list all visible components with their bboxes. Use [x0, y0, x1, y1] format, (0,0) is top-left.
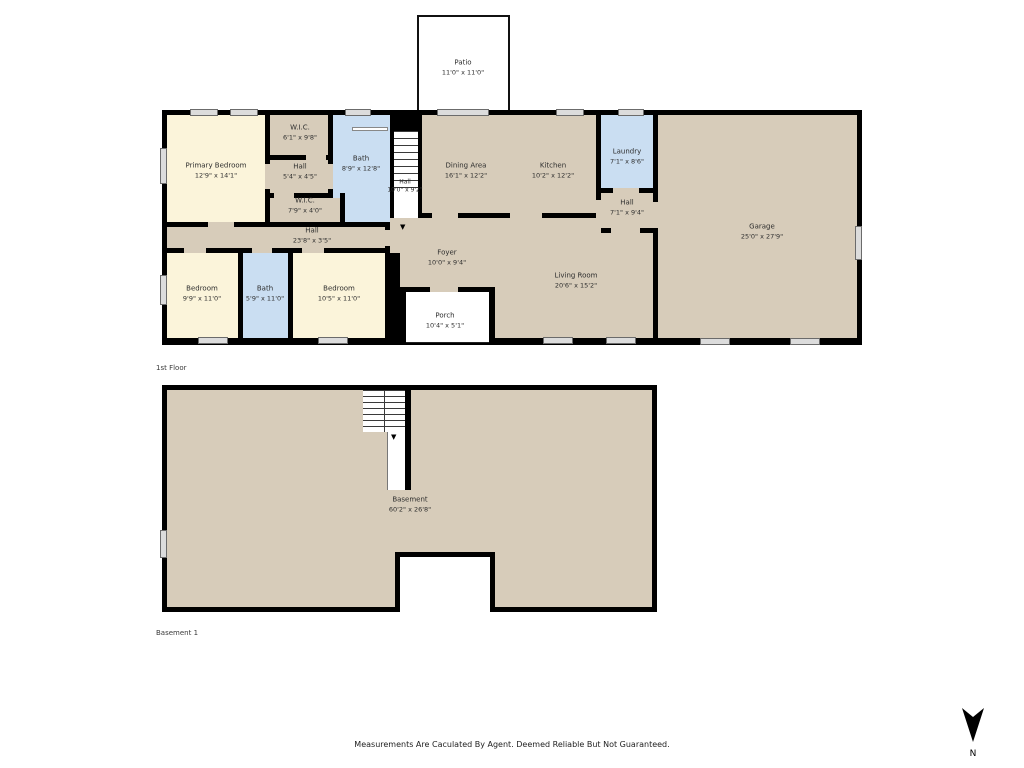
label-bedroom-left: Bedroom9'9" x 11'0": [183, 285, 221, 304]
window: [318, 337, 348, 344]
wall-segment: [458, 213, 510, 218]
footer-disclaimer: Measurements Are Caculated By Agent. Dee…: [0, 740, 1024, 749]
north-arrow-icon: [960, 706, 986, 744]
floorplan-page: ▼ ▼ Patio11'0" x 11'0" Primary Bedroom12…: [0, 0, 1024, 768]
window: [543, 337, 573, 344]
label-basement: Basement60'2" x 26'8": [389, 496, 431, 515]
label-dining-area: Dining Area16'1" x 12'2": [445, 162, 487, 181]
door-opening: [306, 155, 326, 160]
door-opening: [385, 230, 390, 246]
label-living-room: Living Room20'6" x 15'2": [555, 272, 598, 291]
window: [855, 226, 862, 260]
caption-basement: Basement 1: [156, 629, 198, 637]
wall-segment: [405, 385, 411, 490]
window: [700, 338, 730, 345]
north-label: N: [958, 749, 988, 759]
window: [790, 338, 820, 345]
label-porch: Porch10'4" x 5'1": [426, 312, 464, 331]
wall-segment: [640, 228, 653, 233]
compass: N: [958, 706, 988, 759]
label-garage: Garage25'0" x 27'9": [741, 223, 783, 242]
label-patio: Patio11'0" x 11'0": [442, 59, 484, 78]
window: [556, 109, 584, 116]
label-stair-hall: Hall10'0" x 9'2": [387, 179, 422, 196]
label-foyer: Foyer10'0" x 9'4": [428, 249, 466, 268]
door-opening: [208, 222, 234, 227]
window: [190, 109, 218, 116]
label-primary-bedroom: Primary Bedroom12'9" x 14'1": [186, 162, 247, 181]
door-opening: [265, 164, 270, 189]
door-opening: [328, 164, 333, 189]
window: [160, 530, 167, 558]
door-opening: [252, 248, 272, 253]
door-opening: [613, 188, 639, 193]
window: [618, 109, 644, 116]
door-opening: [653, 202, 658, 228]
wall-segment: [542, 213, 596, 218]
label-bath-primary: Bath8'9" x 12'8": [342, 155, 380, 174]
label-wic-lower: W.I.C.7'9" x 4'0": [288, 197, 322, 216]
wall-segment: [340, 193, 345, 222]
patio-door: [437, 109, 489, 116]
window: [606, 337, 636, 344]
label-hall-rear: Hall7'1" x 9'4": [610, 199, 644, 218]
label-hall-main: Hall23'8" x 3'5": [293, 227, 331, 246]
label-bath-second: Bath5'9" x 11'0": [246, 285, 284, 304]
window: [345, 109, 371, 116]
label-bedroom-right: Bedroom10'5" x 11'0": [318, 285, 360, 304]
label-hall-small: Hall5'4" x 4'5": [283, 163, 317, 182]
stair-direction-arrow-icon: ▼: [391, 434, 396, 441]
bath-fixture: [352, 127, 388, 131]
room-hall-main: [167, 227, 385, 248]
wall-segment: [392, 115, 420, 131]
label-wic-upper: W.I.C.6'1" x 9'8": [283, 124, 317, 143]
door-opening: [302, 248, 324, 253]
wall-segment: [601, 228, 611, 233]
stair-rail-icon: [384, 390, 386, 432]
window: [198, 337, 228, 344]
label-laundry: Laundry7'1" x 8'6": [610, 148, 644, 167]
door-opening: [184, 248, 206, 253]
window: [160, 148, 167, 184]
wall-segment: [422, 213, 432, 218]
window: [230, 109, 258, 116]
stair-direction-arrow-icon: ▼: [400, 224, 405, 231]
door-opening: [430, 287, 458, 292]
door-opening: [596, 200, 601, 225]
window: [160, 275, 167, 305]
basement-notch: [400, 557, 490, 617]
caption-first-floor: 1st Floor: [156, 364, 187, 372]
label-kitchen: Kitchen10'2" x 12'2": [532, 162, 574, 181]
wall-segment: [385, 253, 400, 342]
